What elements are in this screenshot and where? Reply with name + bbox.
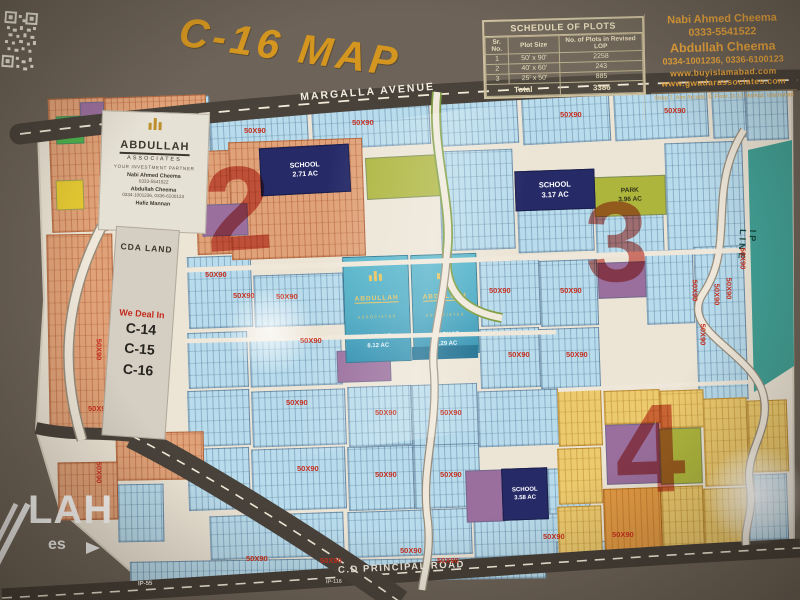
school-2-area: 3.17 AC [541,190,569,200]
logo-agent: Abdullah Cheema0334-1001236, 0336-610012… [100,185,206,200]
cda-land-strip: CDA LAND We Deal In C-14 C-15 C-16 [101,226,179,440]
plot-size-label: 50X90 [94,339,103,361]
schedule-cell: 2 [486,64,509,75]
plot-size-label: 50X90 [300,336,322,345]
plot-size-label: 50X90 [375,470,397,479]
plot-size-label: 50X90 [244,126,266,135]
col-no-of-plots: No. of Plots in Revised LOP [559,33,642,52]
plot-size-label: 50X90 [440,408,462,417]
markaz-2-logo-type: ASSOCIATES [426,312,465,317]
plot-block [477,389,561,448]
sector-c16: C-16 [106,357,169,382]
plot-size-label: 50X90 [543,532,565,541]
watermark-text: LAH [28,488,113,533]
plot-block [209,512,344,561]
plot-size-label: 50X90 [233,291,255,300]
logo-tagline: YOUR INVESTMENT PARTNER [101,163,207,172]
plot-size-label: 50X90 [612,530,634,539]
markaz-1-logo-type: ASSOCIATES [358,314,397,319]
markaz-1-label: MARKAZ [365,334,391,341]
plot-size-label: 50X90 [352,118,374,127]
plot-block [433,93,520,147]
plot-block [747,473,789,540]
logo-type: ASSOCIATES [101,154,207,164]
sector-number-3: 3 [583,191,646,296]
plot-block [249,336,343,387]
plot-size-label: 50X90 [508,350,530,359]
abdullah-watermark: LAH es [0,470,150,600]
plot-block [80,102,105,121]
markaz-1-area: 8.12 AC [367,343,389,350]
plot-block [130,558,342,586]
school-3-block: SCHOOL3.58 AC [501,467,549,521]
plot-block [703,487,749,556]
plot-size-label: 50X90 [437,556,459,565]
plot-size-label: 50X90 [664,106,686,115]
plot-size-label: 50X90 [566,350,588,359]
plot-size-label: 50X90 [246,554,268,563]
school-3-area: 3.58 AC [514,495,536,502]
plot-size-label: 50X90 [690,280,699,302]
plot-block [465,469,505,522]
logo-agent-name: Hafiz Mannan [100,199,206,209]
sector-number-4: 4 [613,391,683,507]
abdullah-associates-emblem-icon [437,269,451,279]
school-2-label: SCHOOL [539,179,571,189]
plot-block [187,331,249,389]
plot-size-label: 50X90 [320,556,342,565]
logo-agent: Hafiz Mannan [100,199,206,209]
schedule-cell: 3 [486,74,509,85]
school-3-label: SCHOOL [512,486,538,493]
ip-116-label: IP-116 [326,579,342,586]
plot-size-label: 50X90 [276,292,298,301]
schedule-cell: 1 [485,54,508,65]
agent1-phone: 0333-5541522 [649,24,795,40]
plot-size-label: 50X90 [440,470,462,479]
markaz-2-block: ABDULLAH ASSOCIATES MARKAZ9.29 AC [410,253,479,355]
markaz-2-label: MARKAZ [433,332,459,339]
plot-size-label: 50X90 [489,286,511,295]
total-value: 3386 [560,80,643,94]
school-1-label: SCHOOL [290,161,320,170]
total-label: Total [486,83,560,97]
plot-size-label: 50X90 [738,248,747,270]
plot-size-label: 50X90 [724,278,733,300]
col-plot-size: Plot Size [508,36,559,54]
markaz-2-name-band [412,345,478,360]
schedule-of-plots-table: SCHEDULE OF PLOTS Sr. No. Plot Size No. … [482,16,646,99]
plot-size-label: 50X90 [400,546,422,555]
plot-block [557,447,603,505]
abdullah-building-icon [147,118,163,131]
plot-block [55,180,84,211]
plot-block [438,149,515,252]
qr-code [1,10,39,74]
plot-block [645,249,696,325]
school-1-area: 2.71 AC [292,170,318,178]
logo-brand: ABDULLAH [120,139,190,156]
plot-size-label: 50X90 [698,324,707,346]
abdullah-associates-emblem-icon [369,271,383,281]
contact-block: Nabi Ahmed Cheema 0333-5541522 Abdullah … [649,11,797,102]
plot-size-label: 50X90 [712,284,721,306]
markaz-1-logo-brand: ABDULLAH [354,294,398,304]
plot-block [747,399,789,472]
plot-block [253,272,345,327]
abdullah-associates-logo-box: ABDULLAH ASSOCIATES YOUR INVESTMENT PART… [98,110,210,234]
map-title: C-16 MAP [176,9,490,99]
cda-land-label: CDA LAND [115,241,178,255]
plot-size-label: 50X90 [560,110,582,119]
plot-block [702,397,749,486]
plot-size-label: 50X90 [560,286,582,295]
markaz-2-logo-brand: ABDULLAH [423,292,467,302]
plot-block [557,387,603,447]
school-1-block: SCHOOL2.71 AC [259,144,351,197]
logo-agent: Nabi Ahmed Cheema0333-5541522 [101,171,207,186]
park-1-block [365,154,443,200]
markaz-1-block: ABDULLAH ASSOCIATES MARKAZ8.12 AC [342,255,412,363]
col-sr-no: Sr. No. [485,37,508,55]
plot-size-label: 50X90 [297,464,319,473]
watermark-subtext: es [48,536,66,554]
plot-block [664,141,746,252]
sector-number-2: 2 [201,153,271,265]
plot-block [251,446,347,511]
plot-size-label: 50X90 [375,408,397,417]
plot-size-label: 50X90 [286,398,308,407]
plot-block [557,505,603,557]
watermark-arrow-icon [86,542,100,554]
